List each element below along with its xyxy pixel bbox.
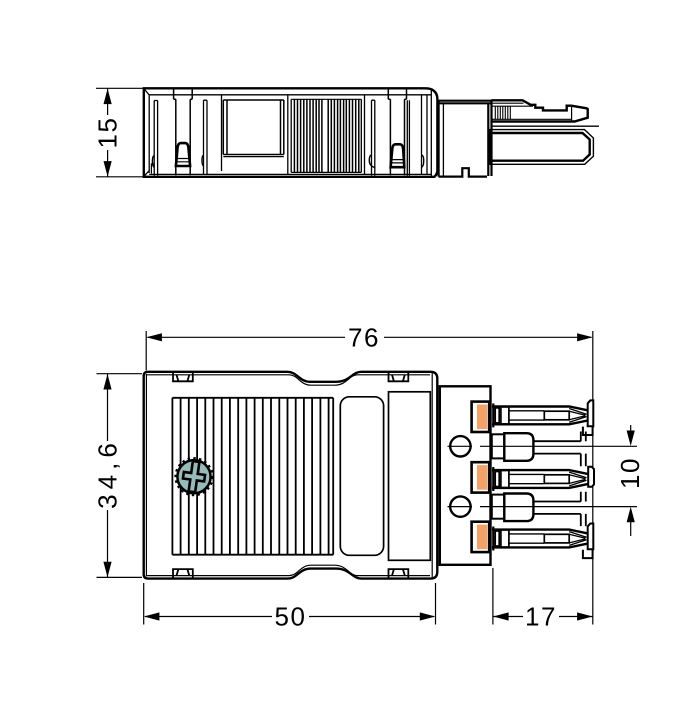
svg-text:10: 10 — [615, 457, 645, 489]
svg-text:50: 50 — [275, 602, 307, 632]
svg-text:17: 17 — [525, 602, 557, 632]
svg-text:34,6: 34,6 — [93, 438, 123, 509]
svg-text:15: 15 — [93, 117, 123, 149]
svg-text:76: 76 — [348, 322, 380, 352]
